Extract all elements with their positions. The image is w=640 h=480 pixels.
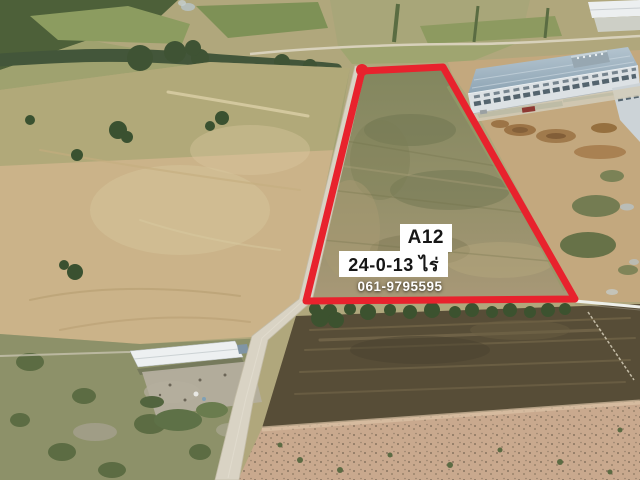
aerial-scene	[0, 0, 640, 480]
corner-marker	[356, 64, 368, 76]
plot-id-label: A12	[400, 224, 452, 252]
phone-number-label: 061-9795595	[340, 278, 460, 294]
aerial-photo: A12 24-0-13 ไร่ 061-9795595	[0, 0, 640, 480]
area-size-label: 24-0-13 ไร่	[339, 251, 448, 277]
